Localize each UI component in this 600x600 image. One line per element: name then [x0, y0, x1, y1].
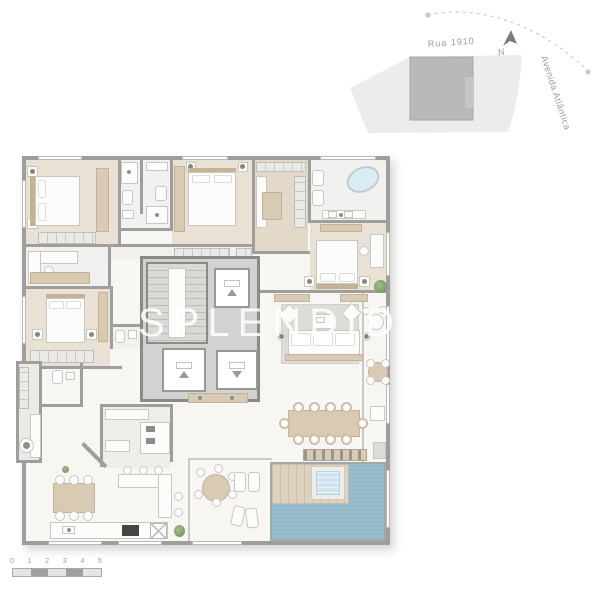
bed-headboard — [316, 284, 358, 289]
lamp-icon — [30, 169, 35, 174]
wall — [100, 404, 173, 407]
wall — [42, 404, 82, 407]
sink — [66, 372, 75, 380]
dining-chair — [325, 434, 336, 445]
lounge-chair — [248, 472, 260, 492]
dining-chair — [293, 434, 304, 445]
elevator-arrow-icon — [232, 371, 242, 378]
scale-bar-segments — [12, 568, 102, 577]
appliance-column — [140, 422, 170, 454]
sink — [344, 211, 353, 218]
window — [22, 296, 26, 344]
scale-tick: 1 — [24, 558, 36, 565]
window — [386, 306, 390, 362]
foyer-console — [188, 393, 248, 403]
sink — [122, 210, 134, 219]
cabinet — [30, 272, 90, 284]
terrace-glass-wall — [362, 293, 364, 462]
wall — [308, 220, 390, 223]
hot-tub-water — [316, 471, 340, 495]
service-shelves — [19, 367, 29, 409]
scale-segment — [31, 569, 49, 576]
chair — [83, 511, 93, 521]
pillow — [214, 175, 232, 183]
elevator — [214, 268, 250, 308]
window — [182, 156, 228, 160]
bar-cabinet — [373, 442, 386, 459]
window — [38, 156, 82, 160]
elevator — [216, 350, 258, 390]
wall — [252, 251, 310, 254]
route-endpoint-dot — [585, 69, 590, 74]
north-arrow-icon — [503, 30, 517, 46]
kitchen-counter — [105, 440, 130, 452]
pillow — [320, 273, 336, 282]
wall — [170, 160, 173, 228]
sink — [128, 330, 137, 339]
scale-bar: 0 1 2 3 4 5 — [8, 558, 118, 584]
pillow — [49, 301, 64, 309]
chair — [69, 475, 79, 485]
kitchen-island — [158, 474, 172, 518]
dining-chair — [357, 418, 368, 429]
plant-icon — [174, 525, 185, 537]
dining-chair — [279, 418, 290, 429]
pillow — [38, 180, 46, 198]
chair — [366, 376, 375, 385]
lounge-chair — [234, 472, 246, 492]
washer-drum-icon — [23, 442, 30, 449]
pool-terrace-glass-wall — [190, 458, 272, 460]
faucet-icon — [339, 213, 343, 217]
chair — [381, 376, 390, 385]
elevator — [162, 348, 206, 392]
tv-console — [320, 224, 362, 232]
shower-drain-icon — [155, 213, 159, 217]
shower-drain-icon — [127, 170, 131, 174]
window — [48, 541, 102, 545]
sink — [328, 211, 337, 218]
wall — [110, 324, 140, 327]
tv-sideboard — [274, 294, 310, 302]
chair — [69, 511, 79, 521]
chair — [196, 468, 205, 477]
scale-tick: 0 — [6, 558, 18, 565]
chair — [359, 246, 369, 256]
coffee-table-tray — [316, 317, 325, 323]
vanity — [146, 162, 168, 171]
decor-icon — [230, 396, 234, 400]
staff-table — [53, 483, 95, 513]
elevator-label-plate — [224, 280, 240, 287]
chair — [381, 359, 390, 368]
window — [22, 180, 26, 228]
scale-segment — [66, 569, 84, 576]
kitchen-counter — [105, 409, 149, 420]
wall — [80, 363, 83, 407]
street-label-top: Rua 1910 — [427, 36, 475, 49]
sofa-back-ledge — [285, 354, 363, 361]
scale-segment — [48, 569, 66, 576]
sofa-cushion — [335, 333, 355, 346]
lamp-icon — [362, 279, 367, 284]
dining-table — [288, 410, 360, 437]
site-building-footprint — [410, 57, 473, 120]
bar-stool — [123, 466, 132, 475]
chair — [55, 475, 65, 485]
lamp-icon — [240, 164, 245, 169]
oven-icon — [146, 426, 155, 432]
closet-island — [262, 192, 282, 220]
chair — [379, 306, 387, 314]
stair-landing — [168, 268, 186, 338]
bar-stool — [139, 466, 148, 475]
scale-segment — [83, 569, 101, 576]
route-endpoint-dot — [425, 12, 430, 17]
pillow — [66, 301, 81, 309]
chair — [55, 511, 65, 521]
closet-shelves — [256, 162, 306, 172]
wall — [26, 244, 254, 247]
faucet-icon — [67, 528, 71, 532]
lamp-icon — [307, 279, 312, 284]
wall — [118, 228, 173, 231]
decor-icon — [198, 396, 202, 400]
tv-sideboard — [340, 294, 368, 302]
chair — [214, 464, 223, 473]
wardrobe — [98, 292, 108, 342]
dining-chair — [293, 402, 304, 413]
lamp-icon — [89, 332, 94, 337]
wall — [308, 160, 311, 220]
scale-tick: 2 — [41, 558, 53, 565]
site-location-map: Rua 1910 N Avenida Atlântica — [345, 2, 600, 147]
wall — [252, 160, 255, 251]
closet-shelves — [294, 176, 306, 228]
dining-chair — [309, 434, 320, 445]
wall — [110, 286, 113, 349]
lamp-icon — [279, 334, 284, 339]
pergola — [303, 449, 367, 461]
plant-icon — [374, 280, 387, 293]
toilet — [122, 190, 133, 205]
floor-plan — [22, 156, 390, 545]
window — [386, 470, 390, 528]
window — [192, 541, 242, 545]
bar-stool — [154, 466, 163, 475]
wall — [258, 290, 390, 293]
appliance — [150, 523, 167, 539]
lamp-icon — [364, 334, 369, 339]
toilet — [52, 370, 63, 384]
window — [386, 232, 390, 276]
lounge-chair — [245, 507, 260, 528]
pool-terrace-glass-wall — [188, 458, 190, 541]
bar-stool — [174, 492, 183, 501]
wall — [108, 247, 111, 289]
toilet — [312, 170, 324, 186]
bistro-table — [368, 314, 384, 330]
toilet — [115, 330, 125, 343]
scale-tick: 3 — [59, 558, 71, 565]
oven-icon — [146, 438, 155, 444]
wall — [170, 404, 173, 462]
wardrobe — [174, 166, 185, 232]
desk — [370, 234, 384, 268]
elevator-label-plate — [229, 362, 245, 369]
elevator-label-plate — [176, 362, 192, 369]
pillow — [38, 203, 46, 221]
scale-tick: 5 — [94, 558, 106, 565]
chair — [194, 490, 203, 499]
elevator-arrow-icon — [227, 289, 237, 296]
bidet — [312, 190, 324, 206]
elevator-arrow-icon — [179, 371, 189, 378]
toilet — [155, 186, 167, 201]
service-counter — [30, 414, 41, 458]
wardrobe — [96, 168, 109, 232]
scale-segment — [13, 569, 31, 576]
dining-chair — [341, 402, 352, 413]
site-building-notch — [465, 77, 474, 108]
lamp-icon — [35, 332, 40, 337]
chair — [366, 359, 375, 368]
armchair — [370, 406, 385, 421]
chair — [362, 307, 370, 315]
plant-icon — [62, 466, 69, 473]
chair — [212, 498, 221, 507]
wall — [26, 286, 113, 289]
chair — [83, 475, 93, 485]
window — [118, 541, 162, 545]
dresser — [38, 232, 96, 244]
wall — [140, 160, 143, 214]
cooktop — [122, 525, 139, 536]
lounge-chair — [230, 505, 246, 527]
window — [320, 156, 376, 160]
pillow — [339, 273, 355, 282]
scale-tick: 4 — [76, 558, 88, 565]
sofa-cushion — [313, 333, 333, 346]
dining-chair — [341, 434, 352, 445]
dining-chair — [309, 402, 320, 413]
dining-chair — [325, 402, 336, 413]
window — [386, 384, 390, 424]
sofa-cushion — [291, 333, 311, 346]
bar-stool — [174, 508, 183, 517]
pillow — [192, 175, 210, 183]
street-label-right: Avenida Atlântica — [539, 55, 572, 132]
